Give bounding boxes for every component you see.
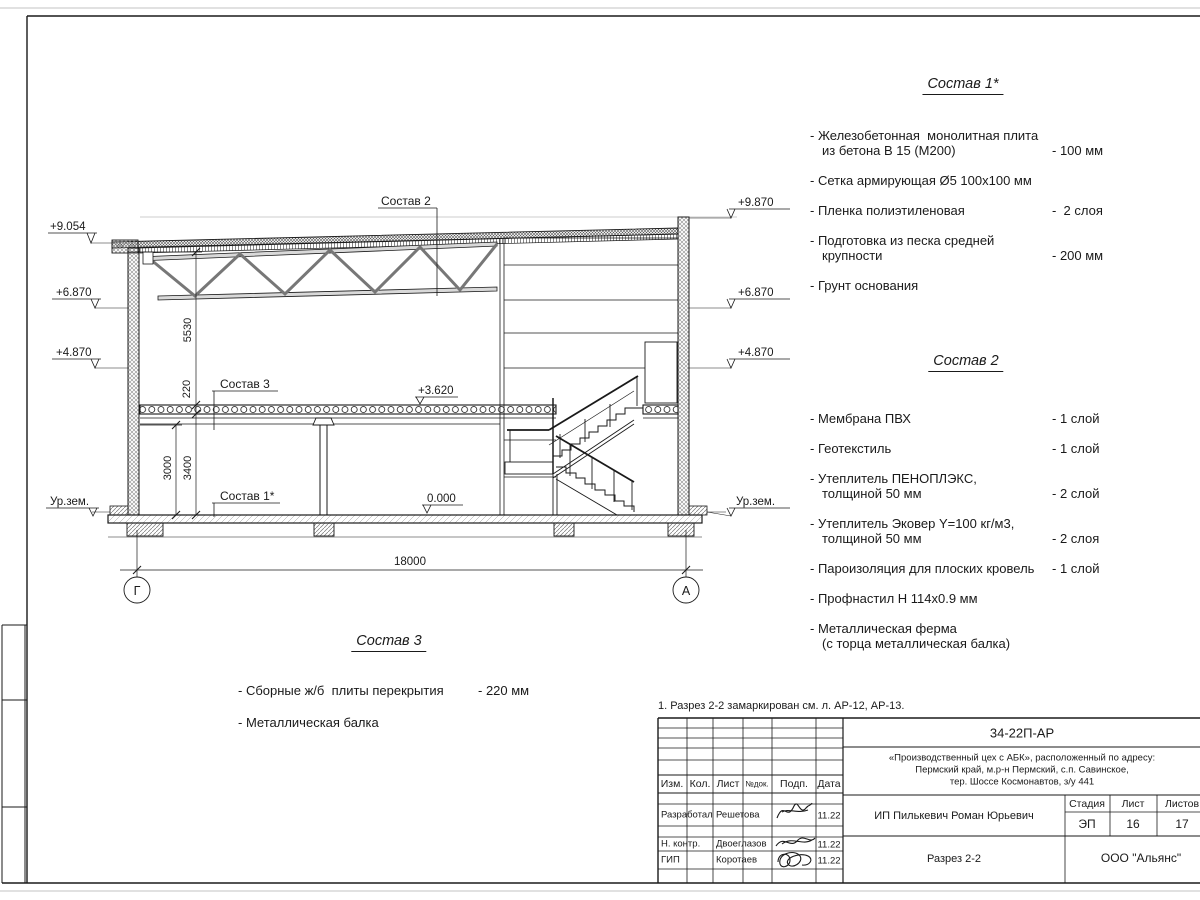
stamp-row-1-role: Н. контр. xyxy=(661,839,700,850)
sheet-note: 1. Разрез 2-2 замаркирован см. л. АР-12,… xyxy=(658,700,904,712)
sostav1-item-4-line1: - Грунт основания xyxy=(810,278,918,293)
signature-control-gip xyxy=(772,832,818,872)
sostav2-item-1-value: - 1 слой xyxy=(1052,441,1100,456)
stamp-client: ИП Пилькевич Роман Юрьевич xyxy=(874,810,1033,822)
sostav2-item-2-value: - 2 слой xyxy=(1052,486,1100,501)
stamp-row-2-date: 11.22 xyxy=(817,856,840,867)
sostav3-title: Состав 3 xyxy=(351,633,426,652)
axis-letter-g: Г xyxy=(134,584,141,598)
stamp-col-podp: Подп. xyxy=(780,778,808,790)
stamp-sheet-label: Лист xyxy=(1122,798,1145,810)
stamp-col-izm: Изм. xyxy=(661,778,684,790)
stamp-col-list: Лист xyxy=(717,778,740,790)
sostav2-item-0-value: - 1 слой xyxy=(1052,411,1100,426)
door-opening xyxy=(645,342,677,403)
stamp-project-line3: тер. Шоссе Космонавтов, з/у 441 xyxy=(950,777,1094,788)
elevation-marks-right xyxy=(689,209,790,516)
drawing-sheet: 5530 220 3000 3400 +9.054 +6.870 +4.870 … xyxy=(0,0,1200,900)
stamp-doc-number: 34-22П-АР xyxy=(990,726,1054,741)
callout-sostav3: Состав 3 xyxy=(220,377,270,391)
sostav3-item-1-line1: - Металлическая балка xyxy=(238,715,379,730)
level-zero: 0.000 xyxy=(427,493,456,505)
sostav1-item-3-line1: - Подготовка из песка средней xyxy=(810,233,994,248)
level-left-2: +4.870 xyxy=(56,347,92,359)
stamp-project-line1: «Производственный цех с АБК», расположен… xyxy=(889,753,1155,764)
stamp-col-kol: Кол. xyxy=(690,778,711,790)
level-left-1: +6.870 xyxy=(56,287,92,299)
sostav2-item-5-line1: - Профнастил Н 114х0.9 мм xyxy=(810,591,978,606)
sostav2-item-3-line2: толщиной 50 мм xyxy=(822,531,922,546)
dim-3400: 3400 xyxy=(182,456,194,480)
stamp-stage-value: ЭП xyxy=(1078,817,1095,831)
stamp-row-2-role: ГИП xyxy=(661,855,680,866)
level-right-0: +9.870 xyxy=(738,197,774,209)
sostav2-item-2-line2: толщиной 50 мм xyxy=(822,486,922,501)
sostav1-item-3-value: - 200 мм xyxy=(1052,248,1103,263)
sostav2-item-3-value: - 2 слоя xyxy=(1052,531,1099,546)
foundation xyxy=(92,506,726,537)
axis-letter-a: А xyxy=(682,584,691,598)
level-plus-3620: +3.620 xyxy=(418,385,454,397)
stamp-stage-label: Стадия xyxy=(1069,798,1105,810)
stamp-drawing-title: Разрез 2-2 xyxy=(927,853,981,865)
sostav2-item-0-line1: - Мембрана ПВХ xyxy=(810,411,911,426)
sostav3-item-0-value: - 220 мм xyxy=(478,683,529,698)
sostav3-item-0-line1: - Сборные ж/б плиты перекрытия xyxy=(238,683,444,698)
sostav1-item-2-line1: - Пленка полиэтиленовая xyxy=(810,203,965,218)
level-left-0: +9.054 xyxy=(50,221,86,233)
sostav2-item-4-line1: - Пароизоляция для плоских кровель xyxy=(810,561,1034,576)
stamp-col-ndok: №док. xyxy=(745,780,768,789)
signature-developer xyxy=(774,798,814,824)
sostav2-item-6-line1: - Металлическая ферма xyxy=(810,621,957,636)
sostav1-item-0-line1: - Железобетонная монолитная плита xyxy=(810,128,1038,143)
level-right-2: +4.870 xyxy=(738,347,774,359)
elevation-marks-left xyxy=(46,233,128,516)
stamp-sheet-value: 16 xyxy=(1126,817,1139,831)
stamp-sheets-value: 17 xyxy=(1175,817,1188,831)
sostav2-item-1-line1: - Геотекстиль xyxy=(810,441,891,456)
sostav2-item-2-line1: - Утеплитель ПЕНОПЛЭКС, xyxy=(810,471,977,486)
stamp-row-0-date: 11.22 xyxy=(817,811,840,822)
level-left-3: Ур.зем. xyxy=(50,496,89,508)
stamp-company: ООО "Альянс" xyxy=(1101,851,1181,865)
sostav2-item-4-value: - 1 слой xyxy=(1052,561,1100,576)
stamp-project-line2: Пермский край, м.р-н Пермский, с.п. Сави… xyxy=(915,765,1129,776)
level-right-1: +6.870 xyxy=(738,287,774,299)
dim-220: 220 xyxy=(181,380,193,398)
stamp-sheets-label: Листов xyxy=(1165,798,1199,810)
callout-sostav2: Состав 2 xyxy=(381,194,431,208)
callout-sostav1: Состав 1* xyxy=(220,489,275,503)
sostav1-item-3-line2: крупности xyxy=(822,248,882,263)
stamp-row-0-role: Разработал xyxy=(661,810,713,821)
sostav1-item-2-value: - 2 слоя xyxy=(1052,203,1103,218)
stamp-row-2-name: Коротаев xyxy=(716,855,757,866)
staircase xyxy=(505,376,643,515)
stamp-row-0-name: Решетова xyxy=(716,810,760,821)
sostav1-title: Состав 1* xyxy=(922,76,1003,95)
sostav2-item-3-line1: - Утеплитель Эковер Y=100 кг/м3, xyxy=(810,516,1014,531)
sostav1-item-1-line1: - Сетка армирующая Ø5 100х100 мм xyxy=(810,173,1032,188)
sostav2-title: Состав 2 xyxy=(928,353,1003,372)
column xyxy=(313,418,334,515)
sostav2-item-6-line2: (с торца металлическая балка) xyxy=(822,636,1010,651)
level-right-3: Ур.зем. xyxy=(736,496,775,508)
dim-3000: 3000 xyxy=(162,456,174,480)
walls xyxy=(128,217,689,515)
dim-5530: 5530 xyxy=(182,318,194,342)
stamp-col-data: Дата xyxy=(817,778,840,790)
stamp-row-1-name: Двоеглазов xyxy=(716,839,767,850)
sostav1-item-0-value: - 100 мм xyxy=(1052,143,1103,158)
sostav1-item-0-line2: из бетона В 15 (М200) xyxy=(822,143,956,158)
dim-18000: 18000 xyxy=(394,556,426,568)
stamp-row-1-date: 11.22 xyxy=(817,840,840,851)
